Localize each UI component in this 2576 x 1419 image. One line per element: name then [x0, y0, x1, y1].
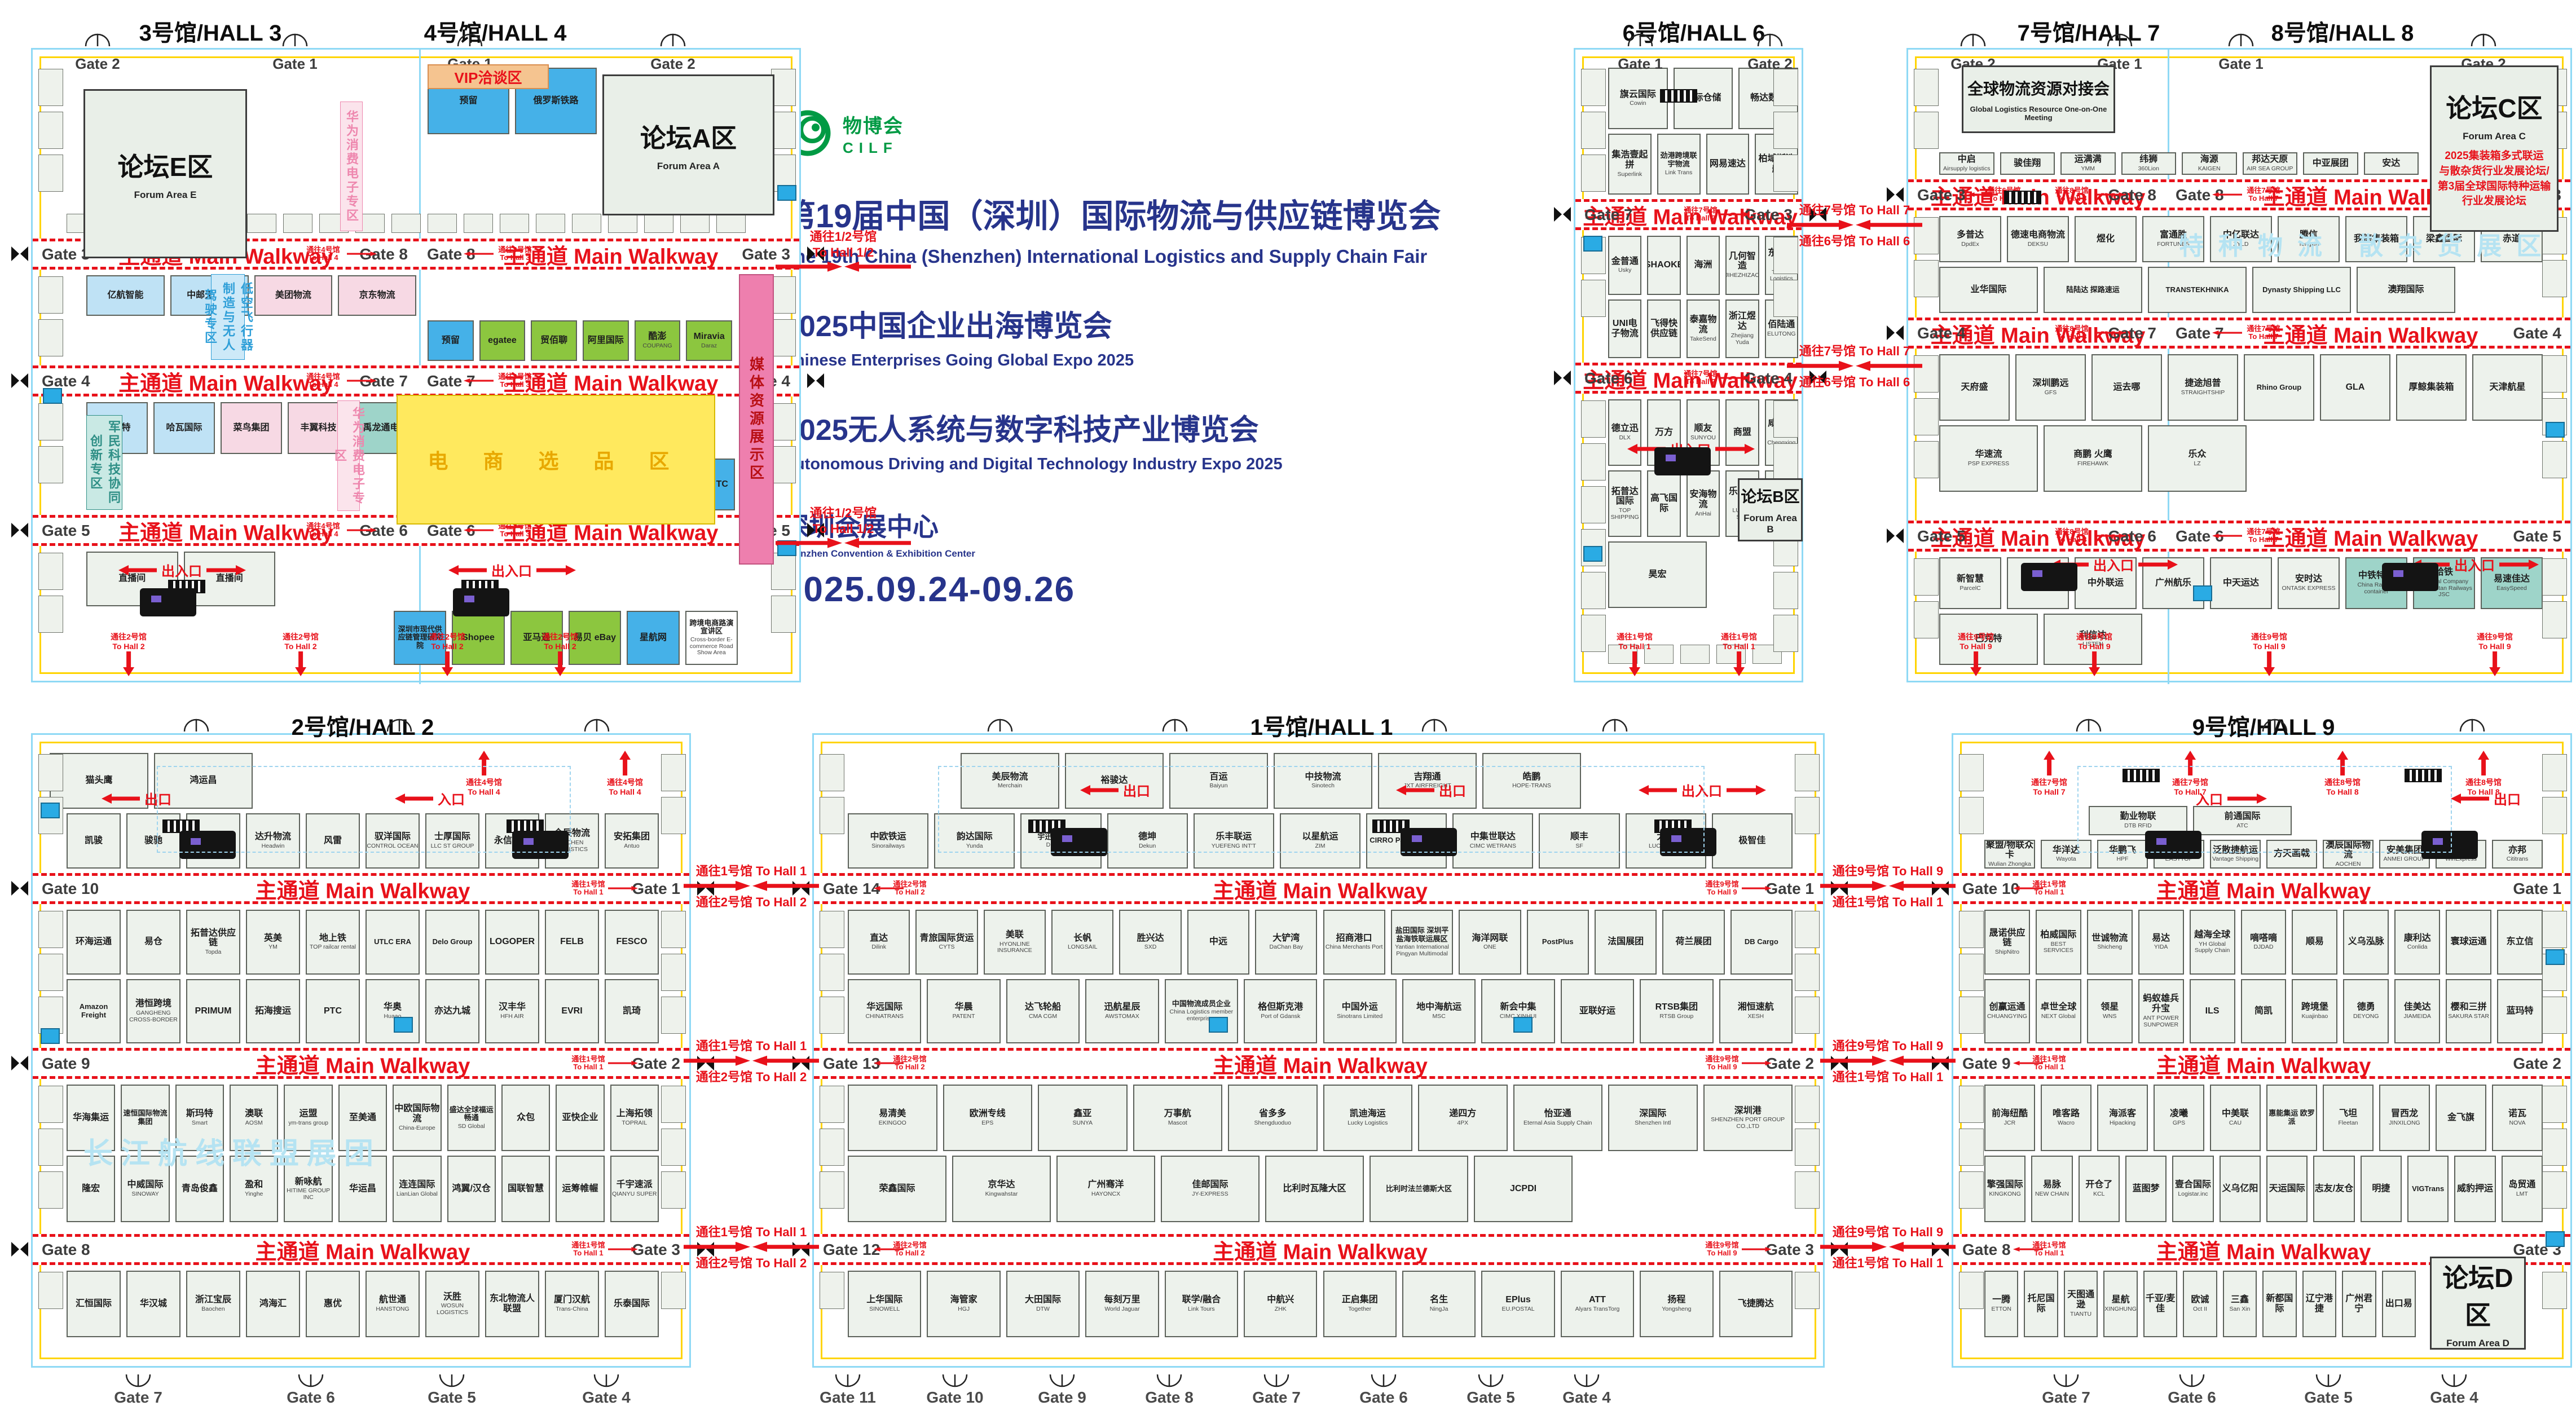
booth: 卓世全球NEXT Global	[2036, 979, 2081, 1044]
to-hall-arrow	[2095, 192, 2126, 198]
booth: 深圳港SHENZHEN PORT GROUP CO.,LTD	[1703, 1085, 1793, 1151]
zone-sublabel: Forum Area A	[657, 161, 720, 172]
booth-name: 寰球运通	[2451, 937, 2487, 947]
booth-small	[1773, 400, 1798, 438]
booth-subname: JY-EXPRESS	[1192, 1191, 1228, 1198]
main-walkway: 主通道 Main WalkwayGate 13Gate 2通往2号馆To Hal…	[814, 1048, 1823, 1079]
booth: 拓普达国际TOP SHIPPING	[1608, 470, 1641, 537]
booth-name: Delo Group	[433, 938, 473, 946]
booth-subname: NingJa	[1430, 1306, 1448, 1313]
booth-subname: ParcelC	[1959, 585, 1980, 592]
booth-name: 汇恒国际	[76, 1299, 112, 1309]
walkway-label: 主通道 Main Walkway	[504, 365, 719, 396]
booth-subname: MSC	[1432, 1013, 1445, 1020]
expo2-title-en: Chinese Enterprises Going Global Expo 20…	[783, 351, 1533, 370]
gate-label: Gate 2	[632, 1055, 680, 1073]
booth-small	[1581, 400, 1606, 438]
booth-name: TRANSTEKHNIKA	[2166, 286, 2229, 294]
to-hall-hint: 通往1号馆To Hall 1	[571, 1241, 605, 1258]
booth: 鸿翼/汉仓	[447, 1156, 496, 1222]
entrance-text: 出入口	[2454, 554, 2495, 574]
booth-name: 运筹帷幄	[562, 1184, 598, 1194]
booth-subname: ONE	[1483, 944, 1496, 951]
zone-forumD: 论坛D区Forum Area D	[2430, 1257, 2526, 1350]
booth-name: 浙江煜达	[1727, 311, 1758, 332]
gate-label: Gate 4	[1562, 1389, 1611, 1407]
zone-label: 论坛A区	[640, 118, 737, 155]
to-hall-hint: 通往8号馆To Hall 8	[2055, 325, 2088, 342]
booth-subname: Sinorailways	[871, 843, 905, 850]
booth: RTSB集团RTSB Group	[1640, 979, 1713, 1044]
booth: 鑫亚SUNYA	[1038, 1085, 1128, 1151]
entrance-text: 出入口	[491, 560, 532, 580]
booth-name: 中亚展团	[2313, 158, 2349, 169]
booth-small	[771, 446, 796, 483]
booth-name: 海洋网联	[1472, 933, 1508, 944]
booth-name: 德勇	[2357, 1002, 2375, 1012]
booth: 蚂蚁雄兵 升宝ANT POWER SUNPOWER	[2138, 979, 2184, 1044]
booth: 飞捷腾达	[1719, 1271, 1793, 1337]
booth: egatee	[479, 320, 526, 361]
walkway-label: 主通道 Main Walkway	[1213, 873, 1428, 904]
booth: 中美联CAU	[2210, 1085, 2261, 1151]
gate-label: Gate 1	[272, 55, 318, 73]
booth-small	[1581, 615, 1606, 652]
booth-small	[1581, 155, 1606, 192]
booth-name: 中航兴	[1267, 1295, 1294, 1305]
booth: 海派客Hipacking	[2097, 1085, 2148, 1151]
booth-subname: STRAIGHTSHIP	[2181, 390, 2225, 396]
logo-text-en: CILF	[843, 139, 904, 157]
zone-hw1: 华为消费电子专区	[340, 102, 363, 231]
booth-subname: TOPRAIL	[622, 1120, 647, 1127]
booth: 上华国际SINOWELL	[848, 1271, 921, 1337]
booth-subname: KAIGEN	[2198, 166, 2221, 173]
booth-subname: SHENZHEN PORT GROUP CO.,LTD	[1705, 1117, 1792, 1130]
booth-small	[661, 1129, 686, 1166]
booth-small	[1581, 280, 1606, 317]
booth-subname: Together	[1348, 1306, 1371, 1313]
booth-name: 预留	[459, 96, 477, 106]
booth-name: 隆宏	[82, 1184, 100, 1194]
gate-label: Gate 4	[1917, 324, 1966, 342]
booth-name: 商盟	[1733, 428, 1751, 438]
expo2-title-cn: 2025中国企业出海博览会	[783, 302, 1533, 345]
booth-subname: Oct II	[2193, 1306, 2207, 1313]
booth-name: VIGTrans	[2412, 1185, 2444, 1193]
booth-name: 天府盛	[1961, 382, 1988, 393]
elevator-icon	[394, 1017, 413, 1033]
booth-small	[661, 1086, 686, 1123]
to-hall-hint: 通往9号馆To Hall 9	[1705, 880, 1738, 897]
booth: 旗云国际Cowin	[1608, 68, 1668, 129]
booth-name: 冒西龙	[2391, 1109, 2418, 1119]
booth: 飞得快供应链	[1647, 299, 1680, 359]
hall-title: 2号馆/HALL 2	[292, 709, 434, 742]
booth-subname: DEKSU	[2028, 241, 2048, 248]
zone-label: 论坛E区	[118, 147, 213, 184]
hall-connector-c21: 通往1号馆 To Hall 1通往2号馆 To Hall 2	[684, 1038, 819, 1085]
booth-subname: COUPANG	[642, 343, 672, 350]
booth-small	[2542, 797, 2567, 834]
booth-small	[1959, 997, 1984, 1034]
booth-small	[1795, 954, 1820, 991]
elevator-icon	[43, 388, 62, 404]
booth-name: 欧诚	[2191, 1295, 2209, 1305]
booth-name: 义乌泓脉	[2348, 937, 2384, 947]
hall-panel-hall6: 6号馆/HALL 6旗云国际Cowin星际仓储畅达数贸集浩壹起拼Superlin…	[1574, 48, 1803, 682]
booth: 佳美达JIAMEIDA	[2394, 979, 2440, 1044]
to-hall-connector: 通往2号馆To Hall 2	[542, 632, 578, 678]
booth: 辽宁港捷	[2302, 1271, 2336, 1337]
booth-small	[38, 1171, 63, 1209]
booth-small	[820, 954, 844, 991]
booth-name: GLA	[2346, 382, 2365, 393]
to-hall-arrow	[2212, 534, 2242, 539]
booth: 哈瓦国际	[153, 402, 215, 454]
booth-subname: HGJ	[958, 1306, 970, 1313]
booth-small	[1914, 398, 1939, 435]
booth-small	[391, 214, 421, 233]
booth-name: 运盟	[300, 1109, 318, 1119]
booth-small	[1581, 69, 1606, 106]
to-hall-arrow	[347, 378, 377, 384]
hall-connector-c67: 通往7号馆 To Hall 7通往6号馆 To Hall 6	[1787, 202, 1922, 249]
booth-name: 天运国际	[2269, 1184, 2305, 1194]
gate-label: Gate 1	[2218, 55, 2264, 73]
stair-icon	[10, 522, 29, 541]
booth: 胜兴达SXD	[1119, 910, 1181, 975]
gate-label: Gate 3	[42, 245, 90, 263]
booth-name: 蓝图梦	[2133, 1184, 2160, 1194]
to-hall-arrow	[463, 252, 494, 257]
booth: EPlusEU.POSTAL	[1481, 1271, 1555, 1337]
gate-label: Gate 12	[823, 1241, 880, 1259]
booth-name: 辽宁港捷	[2304, 1294, 2335, 1314]
booth-small	[661, 911, 686, 948]
booth-subname: Sinotrans Limited	[1337, 1013, 1382, 1020]
booth-name: 泰嘉物流	[1688, 315, 1719, 335]
booth-small	[644, 214, 673, 233]
booth: 创赢运通CHUANGYING	[1984, 979, 2030, 1044]
to-hall-hint: 通往7号馆To Hall 7	[2247, 187, 2280, 204]
booth-name: 广州君宁	[2343, 1294, 2375, 1314]
booth-name: 京华达	[988, 1180, 1015, 1190]
booth-name: 德速电商物流	[2011, 230, 2065, 240]
booth-name: 美团物流	[275, 290, 311, 301]
hall-connector-c67: 通往7号馆 To Hall 7通往6号馆 To Hall 6	[1787, 343, 1922, 390]
booth: 环海运通	[67, 910, 121, 975]
gate-door-icon	[2076, 718, 2102, 734]
booth: 大田国际DTW	[1006, 1271, 1080, 1337]
booth: 领星WNS	[2087, 979, 2133, 1044]
walkway-label: 主通道 Main Walkway	[2264, 521, 2478, 552]
booth: 沃胜WOSUN LOGISTICS	[425, 1271, 479, 1337]
booth: 惠能集运 欧罗派	[2266, 1085, 2317, 1151]
booth-subname: Wayota	[2056, 856, 2076, 863]
entrance-label: 出入口	[117, 560, 246, 580]
booth-name: 环海运通	[76, 937, 112, 947]
main-walkway: 主通道 Main Walkway主通道 Main WalkwayGate 7Ga…	[33, 365, 799, 396]
booth-small	[38, 403, 63, 440]
booth-subname: Link Tours	[1188, 1306, 1215, 1313]
booth-small	[1773, 155, 1798, 192]
booth-name: 中天运达	[2223, 578, 2259, 588]
entrance-text: 出入口	[161, 560, 202, 580]
main-walkway: 主通道 Main WalkwayGate 9Gate 2通往1号馆To Hall…	[33, 1048, 689, 1079]
booth-name: 青旅国际货运	[920, 933, 974, 944]
booth-name: 壹合国际	[2175, 1180, 2211, 1190]
booth: UNI电子物流	[1608, 299, 1641, 359]
booth: 欧诚Oct II	[2183, 1271, 2217, 1337]
booth: 易达YIDA	[2138, 910, 2184, 975]
booth-subname: Link Trans	[1665, 170, 1692, 177]
booth-subname: NOVA	[2509, 1120, 2526, 1127]
to-hall-hint: 通往8号馆To Hall 8	[2055, 187, 2088, 204]
booth-name: 拓普达供应链	[187, 928, 239, 949]
booth: 纬狮360Lion	[2121, 152, 2177, 175]
booth-small	[38, 754, 63, 791]
booth-name: 拓海搜运	[255, 1006, 291, 1016]
booth: 海管家HGJ	[927, 1271, 1000, 1337]
hall-title: 1号馆/HALL 1	[1250, 709, 1393, 742]
booth-small	[1795, 911, 1820, 948]
booth: 天运国际	[2266, 1156, 2308, 1222]
booth-small	[283, 214, 312, 233]
booth: 昊宏	[1608, 541, 1707, 608]
booth-subname: YIDA	[2154, 944, 2168, 951]
booth-subname: ONTASK EXPRESS	[2282, 585, 2336, 592]
booth-small	[1773, 615, 1798, 652]
booth-name: 法国展团	[1608, 937, 1644, 947]
booth-name: 华速流	[1975, 450, 2002, 460]
gate-door-icon	[457, 33, 483, 49]
booth-subname: Yongsheng	[1662, 1306, 1691, 1313]
gate-label: Gate 9	[1962, 1055, 2011, 1073]
elevator-icon	[41, 803, 60, 818]
booth: 中国外运Sinotrans Limited	[1323, 979, 1397, 1044]
booth-name: 世诚物流	[2091, 933, 2128, 944]
booth-subname: ANT POWER SUNPOWER	[2139, 1015, 2183, 1028]
booth-name: 极智佳	[1738, 836, 1765, 846]
booth-small	[247, 214, 276, 233]
gate-door-icon	[183, 718, 209, 734]
booth-small	[1914, 112, 1939, 149]
walkway-label: 主通道 Main Walkway	[2156, 873, 2371, 904]
main-walkway: 主通道 Main WalkwayGate 6Gate 4通往7号馆To Hall…	[1575, 363, 1802, 394]
booth: 聚盟/物联众卡Wulian Zhongka	[1984, 840, 2035, 869]
to-hall-hint: 通往3号馆To Hall 3	[498, 522, 531, 539]
booth-name: 达飞轮船	[1025, 1002, 1061, 1012]
entrance-zone	[2077, 766, 2452, 853]
gate-door-icon	[1049, 1372, 1075, 1388]
booth: 每刻万里World Jaguar	[1085, 1271, 1159, 1337]
booth: 安拓集团Antuo	[605, 813, 659, 869]
booth-name: 千宇速派	[617, 1180, 653, 1190]
booth-small	[1959, 1171, 1984, 1209]
booth: 直达Dilink	[848, 910, 910, 975]
booth: 正启集团Together	[1323, 1271, 1397, 1337]
booth: 名生NingJa	[1402, 1271, 1476, 1337]
gate-door-icon	[584, 718, 610, 734]
stair-icon	[1886, 527, 1905, 547]
booth: 简凯	[2241, 979, 2287, 1044]
booth-name: Rhino Group	[2257, 384, 2301, 392]
gate-door-icon	[298, 1372, 324, 1388]
booth: 东立信	[2497, 910, 2543, 975]
booth: 汉丰华HFH AIR	[485, 979, 539, 1044]
booth: 亿航智能	[86, 275, 165, 316]
booth-name: 华运昌	[349, 1184, 376, 1194]
booth-subname: AIR SEA GROUP	[2247, 166, 2293, 173]
booth-subname: San Xin	[2230, 1306, 2251, 1313]
gate-label: Gate 5	[2513, 527, 2561, 545]
walkway-label: 主通道 Main Walkway	[1213, 1048, 1428, 1079]
booth-name: 中美联	[2222, 1109, 2249, 1119]
gate-door-icon	[835, 1372, 861, 1388]
booth-name: LOGOPER	[490, 937, 535, 947]
elevator-icon	[777, 185, 796, 201]
booth-subname: NEW CHAIN	[2035, 1191, 2069, 1198]
booth-name: 广州航乐	[2155, 578, 2191, 588]
booth-subname: Trans-China	[556, 1306, 588, 1313]
gate-door-icon	[1574, 1372, 1600, 1388]
booth-name: 乐泰国际	[614, 1299, 650, 1309]
gate-label: Gate 2	[2513, 1055, 2561, 1073]
booth: 中欧国际物流China-Europe	[393, 1085, 441, 1151]
booth-subname: SAKURA STAR	[2448, 1013, 2489, 1020]
booth: 煜化	[2075, 216, 2137, 262]
booth-subname: DpdEx	[1961, 241, 1979, 248]
booth: 捷途旭普STRAIGHTSHIP	[2168, 354, 2238, 421]
gate-door-icon	[439, 1372, 465, 1388]
gate-label: Gate 14	[823, 880, 880, 898]
booth-name: 大铲湾	[1272, 933, 1300, 944]
gate-label: Gate 1	[1618, 55, 1663, 73]
booth-subname: DTW	[1036, 1306, 1050, 1313]
booth-small	[1795, 997, 1820, 1034]
zone-vip: VIP洽谈区	[428, 64, 549, 89]
booth-name: 德立迅	[1611, 424, 1639, 434]
gate-label: Gate 10	[42, 880, 99, 898]
booth-small	[1773, 443, 1798, 481]
zone-ecom: 电 商 选 品 区	[397, 395, 715, 525]
booth: FELB	[545, 910, 599, 975]
booth-name: 一腾	[1992, 1295, 2010, 1305]
booth-small	[716, 214, 746, 233]
walkway-label: 主通道 Main Walkway	[256, 1048, 470, 1079]
booth-small	[1581, 486, 1606, 523]
booth-small	[38, 112, 63, 149]
booth-name: 港恒跨境	[135, 999, 171, 1009]
booth-subname: HYONLINE INSURANCE	[985, 941, 1045, 954]
walkway-label: 主通道 Main Walkway	[256, 873, 470, 904]
gate-label: Gate 6	[287, 1389, 335, 1407]
zone-forumE: 论坛E区Forum Area E	[83, 89, 247, 258]
booth: ATTAlyars TransTorg	[1561, 1271, 1634, 1337]
booth: 湘恒速航XESH	[1719, 979, 1793, 1044]
booth-name: 菜鸟集团	[233, 423, 269, 433]
to-hall-arrow	[1742, 1061, 1772, 1067]
booth: 诺瓦NOVA	[2492, 1085, 2543, 1151]
booth-small	[820, 754, 844, 791]
booth-small	[38, 1272, 63, 1309]
booth-small	[2542, 997, 2567, 1034]
booth-name: 名生	[1430, 1295, 1448, 1305]
expo3-title-cn: 2025无人系统与数字科技产业博览会	[783, 406, 1533, 448]
to-hall-hint: 通往8号馆To Hall 8	[2055, 528, 2088, 545]
booth-subname: JIAMEIDA	[2404, 1013, 2431, 1020]
to-hall-arrow	[463, 528, 494, 534]
booth-small	[820, 1171, 844, 1209]
booth-subname: XESH	[1747, 1013, 1764, 1020]
booth-name: 联学/融合	[1182, 1295, 1221, 1305]
to-hall-arrow	[608, 1061, 639, 1067]
booth: 佳邮国际JY-EXPRESS	[1161, 1156, 1260, 1222]
booth-subname: NEXT Global	[2041, 1013, 2076, 1020]
booth: 新都国际	[2262, 1271, 2296, 1337]
gate-door-icon	[1162, 718, 1188, 734]
booth-name: 岛贸通	[2508, 1180, 2535, 1190]
booth-name: 易速佳达	[2494, 574, 2530, 584]
to-hall-arrow	[2095, 534, 2126, 539]
booth-small	[38, 1086, 63, 1123]
booth-name: PTC	[324, 1006, 342, 1016]
booth-name: 东北物流人联盟	[486, 1294, 538, 1314]
booth-subname: HAYONCX	[1091, 1191, 1120, 1198]
booth: 东北物流人联盟	[485, 1271, 539, 1337]
booth-subname: GPS	[2173, 1120, 2185, 1127]
hall-panel-hall9: 9号馆/HALL 9勤业物联DTB RFID前通国际ATC聚盟/物联众卡Wuli…	[1952, 733, 2572, 1368]
booth: 华晨PATENT	[927, 979, 1000, 1044]
zone-label: 全球物流资源对接会	[1967, 77, 2110, 99]
to-hall-connector: 通往1号馆To Hall 1	[1721, 632, 1757, 678]
booth-subname: Dilink	[871, 944, 886, 951]
booth: 省多多Shengduoduo	[1228, 1085, 1318, 1151]
booth-name: ATT	[1589, 1295, 1606, 1305]
booth: 华奥Huaao	[366, 979, 420, 1044]
booth-name: 邦达天原	[2252, 155, 2288, 165]
booth-name: 盈和	[245, 1180, 263, 1190]
booth-subname: Lucky Logistics	[1348, 1120, 1388, 1127]
booth-subname: China Merchants Port	[1326, 944, 1383, 951]
booth-name: 拓普达国际	[1609, 487, 1640, 507]
booth: 浙江宝辰Baochen	[186, 1271, 240, 1337]
booth-subname: BEST SERVICES	[2037, 941, 2080, 954]
booth-small	[771, 319, 796, 356]
walkway-label: 主通道 Main Walkway	[1213, 1234, 1428, 1265]
booth-name: 哈瓦国际	[166, 423, 202, 433]
booth-small	[2542, 260, 2567, 297]
booth-subname: DJDAD	[2253, 944, 2273, 951]
hall-connector-c19: 通往9号馆 To Hall 9通往1号馆 To Hall 1	[1820, 1224, 1956, 1271]
booth-subname: Shengduoduo	[1254, 1120, 1291, 1127]
expo3-title-en: Autonomous Driving and Digital Technolog…	[783, 455, 1533, 474]
security-scanner-icon	[140, 588, 196, 616]
booth-small	[820, 1086, 844, 1123]
booth-name: 盛达全球福运畅通	[448, 1106, 495, 1122]
booth: 青旅国际货运CYTS	[915, 910, 977, 975]
booth-name: Miravia	[694, 332, 725, 342]
zone-hw2: 华为消费电子专区	[337, 400, 360, 511]
booth-name: 新会中集	[1500, 1002, 1536, 1012]
booth: Delo Group	[425, 910, 479, 975]
to-hall-connector: 通往1号馆To Hall 1	[1617, 632, 1653, 678]
booth: 开仓了KCL	[2079, 1156, 2120, 1222]
booth-name: 大田国际	[1025, 1295, 1061, 1305]
booth: 运筹帷幄	[556, 1156, 604, 1222]
booth-small	[1959, 1272, 1984, 1309]
